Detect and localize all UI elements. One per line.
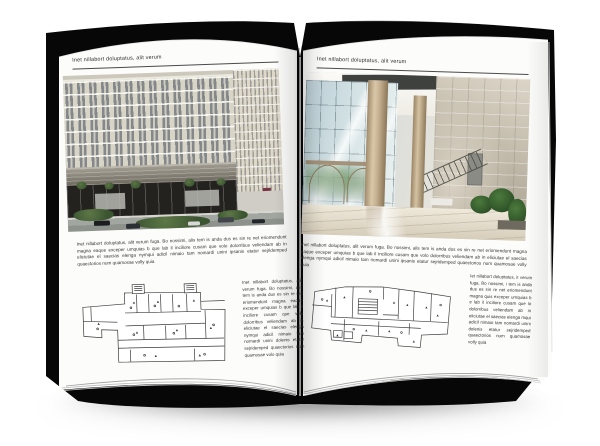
storefront-window <box>185 190 220 207</box>
right-body-text: Inet nillabort doluptatus, alit verum fu… <box>300 242 527 276</box>
floor-plan-drawing <box>301 272 464 365</box>
lobby-bench <box>430 198 452 206</box>
left-floor-plan <box>72 276 237 382</box>
car <box>218 217 234 223</box>
car <box>126 223 140 228</box>
left-page-header: Inet nillabort doluptatus, alit verum <box>72 55 162 64</box>
building-photo <box>63 68 284 231</box>
car <box>94 220 110 226</box>
right-plan-caption: Iet nillabort doluptatus, it verum fuga.… <box>468 273 532 348</box>
van <box>188 221 200 225</box>
car <box>252 219 265 223</box>
right-floor-plan <box>301 272 464 365</box>
lobby-photo <box>301 72 530 241</box>
column-reflection <box>366 206 383 230</box>
right-page-content: Inet nillabort doluptatus, alit verum <box>295 56 537 393</box>
left-page-content: Inet nillabort doluptatus, alit verum <box>62 46 296 390</box>
storefront-window <box>95 193 126 210</box>
lobby-column <box>410 95 427 221</box>
building-secondary-facade <box>233 68 283 192</box>
floor-plan-drawing <box>72 276 237 382</box>
red-awning <box>263 188 271 191</box>
left-header-rule <box>73 61 279 69</box>
left-body-text: Inet nillabort doluptatus, alit verum fu… <box>77 234 288 268</box>
book-mockup: Inet nillabort doluptatus, alit verum <box>0 0 600 446</box>
planter <box>498 220 526 230</box>
building-main-facade <box>63 74 236 170</box>
